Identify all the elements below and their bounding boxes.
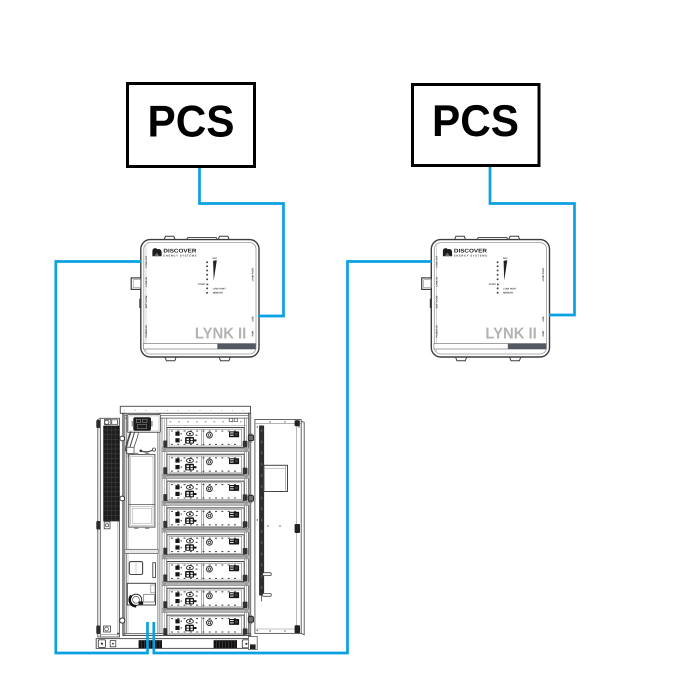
svg-text:PCS: PCS — [148, 98, 235, 147]
svg-text:PCS: PCS — [432, 97, 519, 146]
